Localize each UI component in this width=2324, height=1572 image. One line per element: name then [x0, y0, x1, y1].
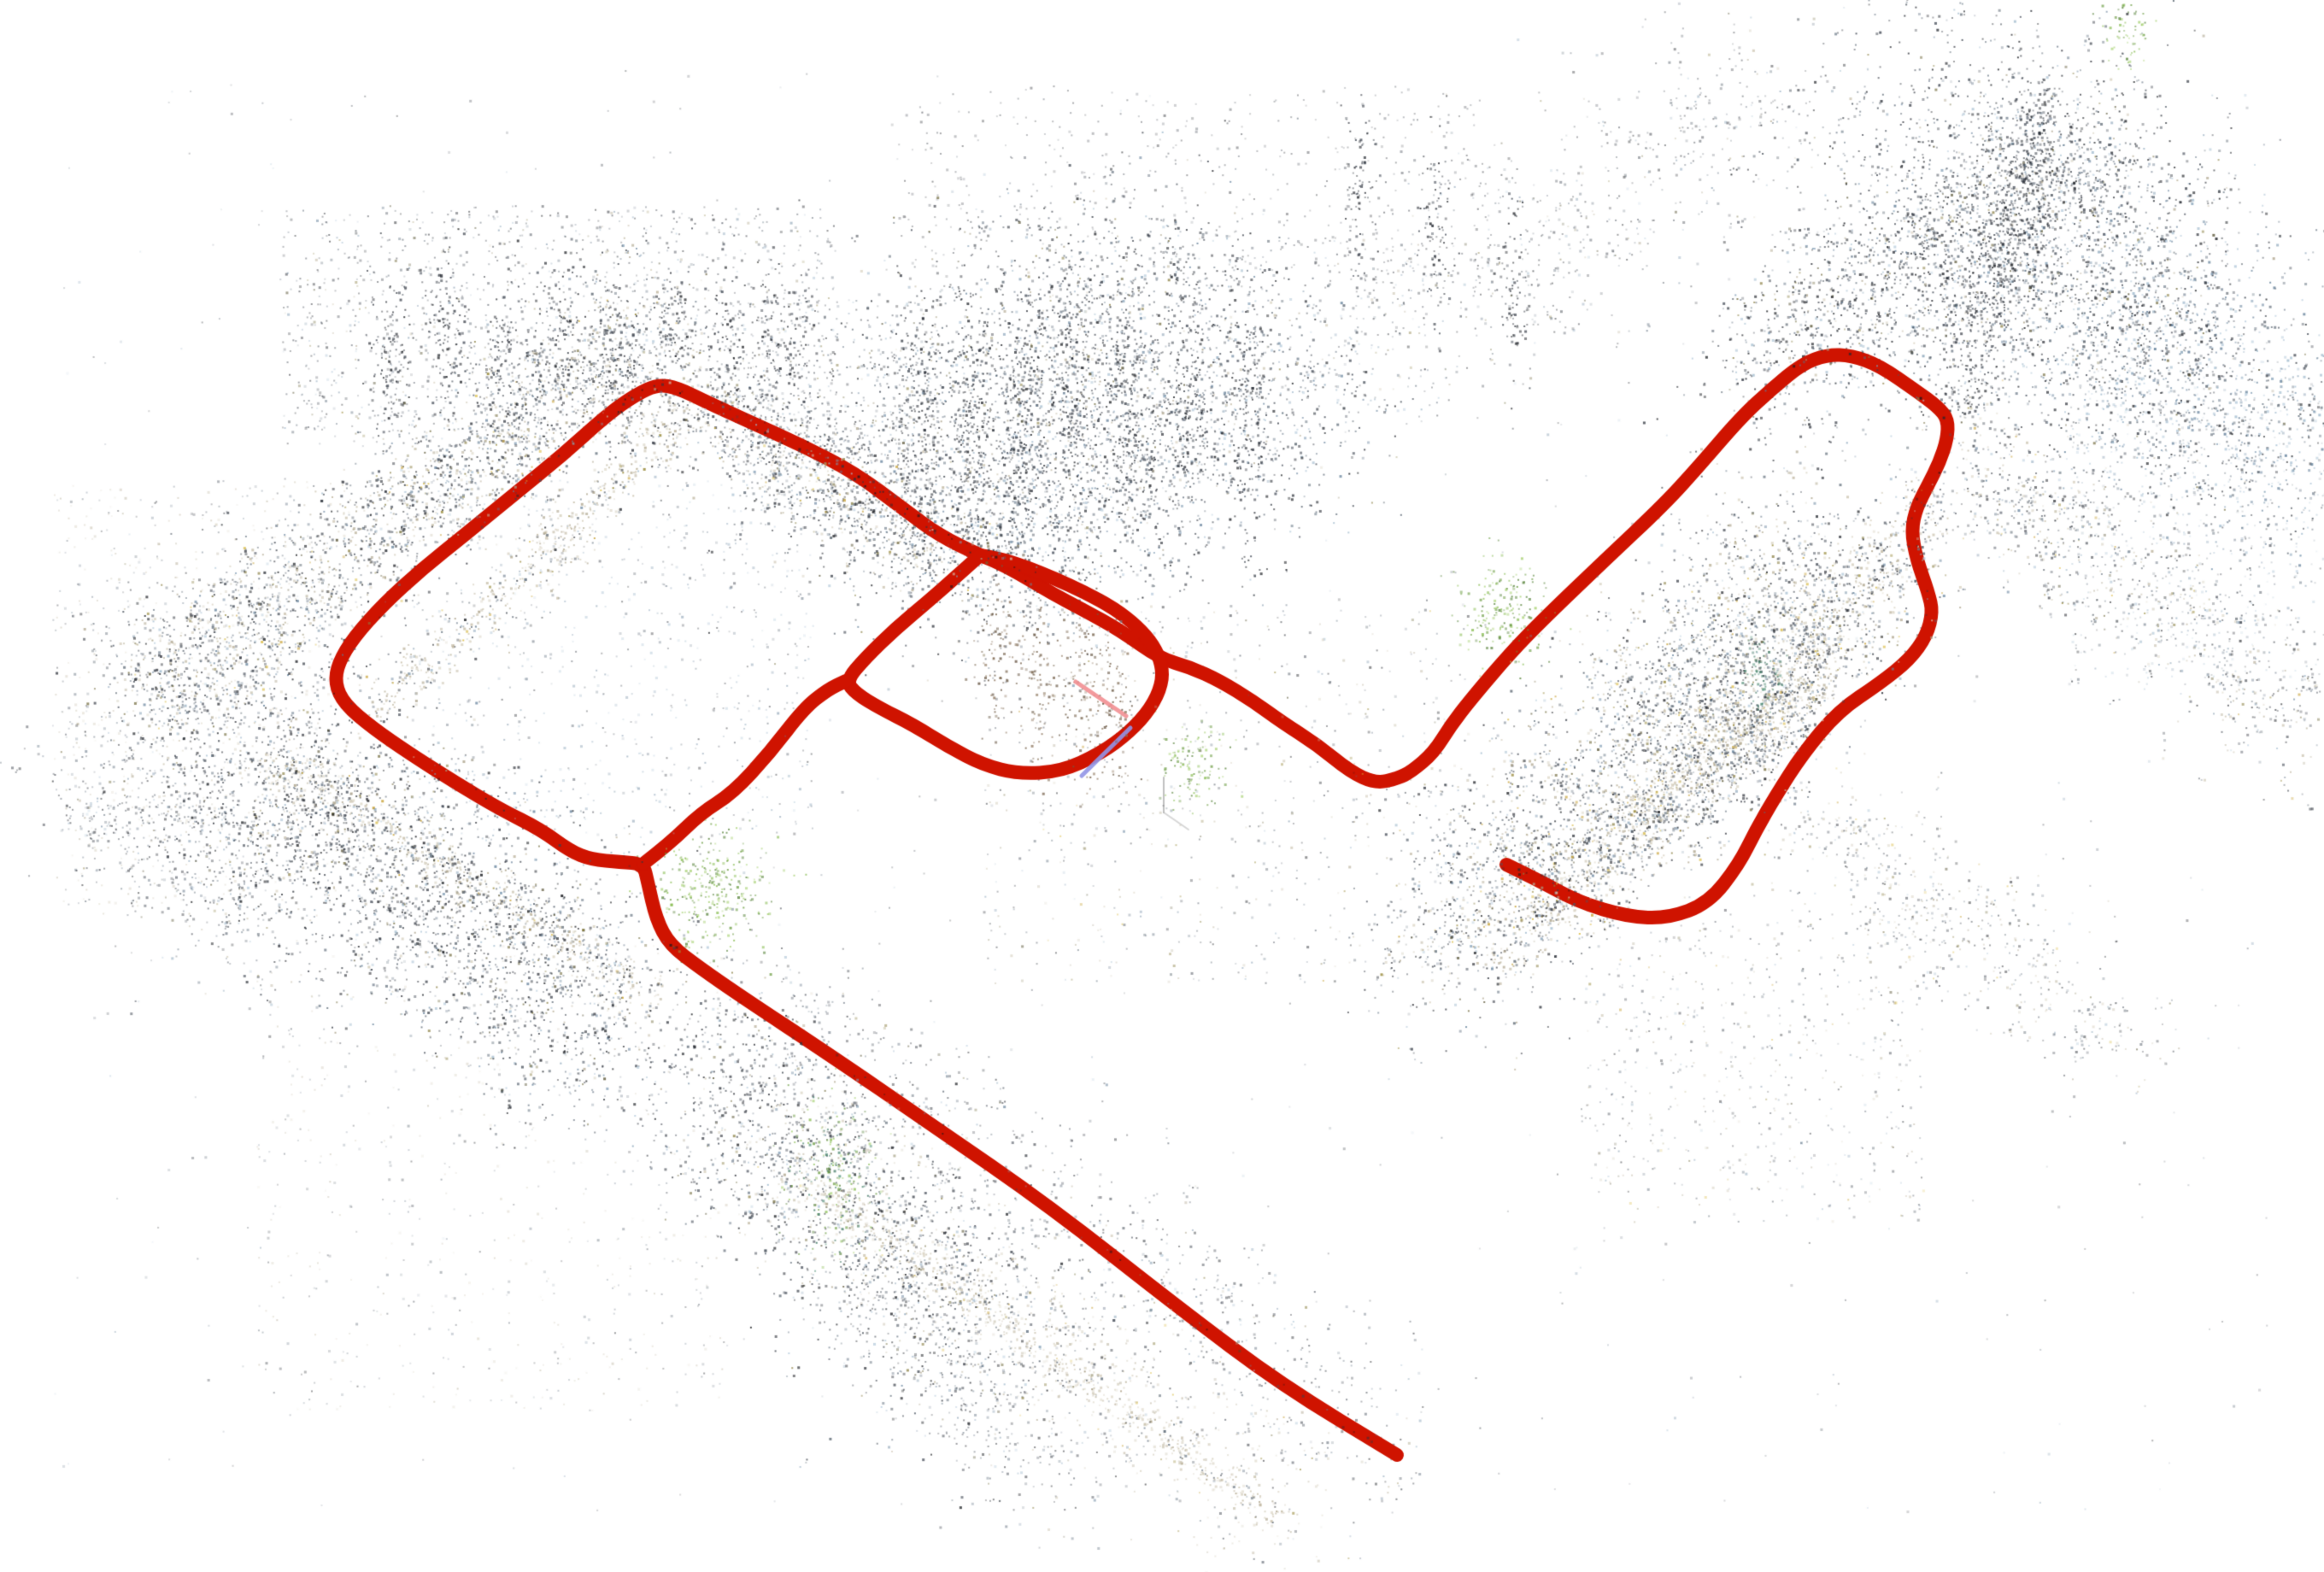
point-cloud-canvas[interactable] — [0, 0, 2324, 1572]
pointcloud-viewer — [0, 0, 2324, 1572]
